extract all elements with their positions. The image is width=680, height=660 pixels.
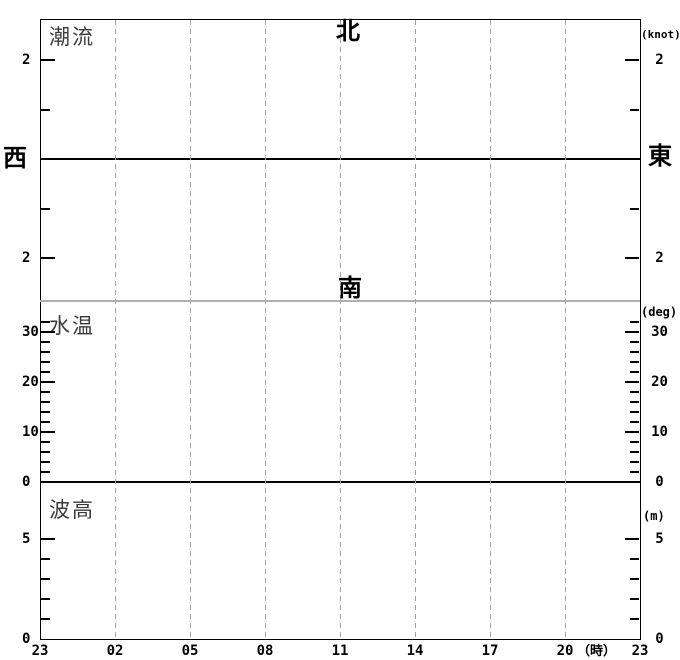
minor-tick-right (630, 321, 639, 323)
direction-label-south: 南 (338, 276, 362, 301)
tide-current-forecast-chart: 潮流 水温 波高 北 南 西 東 (knot) (deg) (m) 2 2 30… (0, 0, 680, 660)
minor-tick-left (41, 411, 50, 413)
minor-tick-left (41, 109, 50, 111)
y-label-temp-10-right: 10 (650, 425, 669, 439)
major-tick-right (625, 431, 639, 433)
direction-label-east: 東 (648, 144, 672, 169)
major-tick-right (625, 59, 639, 61)
minor-tick-left (41, 471, 50, 473)
y-label-temp-20-right: 20 (650, 375, 669, 389)
major-tick-left (41, 257, 55, 259)
minor-tick-left (41, 341, 50, 343)
y-label-temp-20-left: 20 (22, 375, 42, 389)
minor-tick-right (630, 361, 639, 363)
minor-tick-right (630, 401, 639, 403)
x-gridline (565, 20, 566, 639)
minor-tick-left (41, 441, 50, 443)
y-label-current-2-lower-right: 2 (650, 251, 669, 265)
x-label-hour-02: 02 (95, 644, 135, 658)
minor-tick-left (41, 578, 50, 580)
minor-tick-left (41, 361, 50, 363)
x-label-hour-17: 17 (470, 644, 510, 658)
minor-tick-left (41, 371, 50, 373)
major-tick-right (625, 257, 639, 259)
minor-tick-right (630, 371, 639, 373)
x-label-hour-11: 11 (320, 644, 360, 658)
minor-tick-right (630, 411, 639, 413)
major-tick-right (625, 331, 639, 333)
minor-tick-left (41, 558, 50, 560)
minor-tick-right (630, 471, 639, 473)
major-tick-left (41, 59, 55, 61)
major-tick-right (625, 381, 639, 383)
x-label-hour-05: 05 (170, 644, 210, 658)
panel-title-tidal-current: 潮流 (49, 27, 95, 48)
major-tick-right (625, 538, 639, 540)
minor-tick-right (630, 341, 639, 343)
y-label-current-2-upper-left: 2 (22, 53, 42, 67)
x-gridline (340, 20, 341, 639)
x-label-hour-08: 08 (245, 644, 285, 658)
minor-tick-right (630, 578, 639, 580)
minor-tick-left (41, 461, 50, 463)
x-axis-unit-hour: （時） (577, 645, 616, 659)
y-label-temp-30-left: 30 (22, 325, 42, 339)
major-tick-left (41, 538, 55, 540)
y-label-wave-5-left: 5 (22, 532, 42, 546)
minor-tick-left (41, 351, 50, 353)
minor-tick-left (41, 618, 50, 620)
x-gridline (115, 20, 116, 639)
y-label-temp-0-left: 0 (22, 475, 42, 489)
minor-tick-left (41, 401, 50, 403)
x-label-hour-14: 14 (395, 644, 435, 658)
x-gridline (490, 20, 491, 639)
y-label-temp-30-right: 30 (650, 325, 669, 339)
minor-tick-right (630, 451, 639, 453)
unit-label-knot: (knot) (641, 28, 680, 41)
minor-tick-left (41, 321, 50, 323)
minor-tick-right (630, 441, 639, 443)
minor-tick-left (41, 208, 50, 210)
x-gridline (265, 20, 266, 639)
y-label-current-2-upper-right: 2 (650, 53, 669, 67)
major-tick-left (41, 431, 55, 433)
major-tick-left (41, 381, 55, 383)
minor-tick-right (630, 351, 639, 353)
minor-tick-right (630, 598, 639, 600)
direction-label-west: 西 (3, 146, 27, 171)
minor-tick-right (630, 558, 639, 560)
x-label-hour-23-end: 23 (620, 644, 660, 658)
minor-tick-right (630, 391, 639, 393)
minor-tick-right (630, 109, 639, 111)
minor-tick-left (41, 598, 50, 600)
x-gridline (415, 20, 416, 639)
x-gridline (190, 20, 191, 639)
minor-tick-right (630, 421, 639, 423)
unit-label-deg: (deg) (641, 306, 677, 319)
minor-tick-left (41, 421, 50, 423)
panel-title-wave-height: 波高 (49, 500, 95, 521)
y-label-temp-10-left: 10 (22, 425, 42, 439)
minor-tick-left (41, 391, 50, 393)
minor-tick-right (630, 208, 639, 210)
minor-tick-left (41, 451, 50, 453)
y-label-current-2-lower-left: 2 (22, 251, 42, 265)
y-label-temp-0-right: 0 (650, 475, 669, 489)
panel-title-water-temperature: 水温 (49, 316, 95, 337)
unit-label-m: (m) (643, 510, 665, 523)
minor-tick-right (630, 461, 639, 463)
major-tick-left (41, 331, 55, 333)
y-label-wave-5-right: 5 (650, 532, 669, 546)
x-label-hour-23-start: 23 (20, 644, 60, 658)
minor-tick-right (630, 618, 639, 620)
